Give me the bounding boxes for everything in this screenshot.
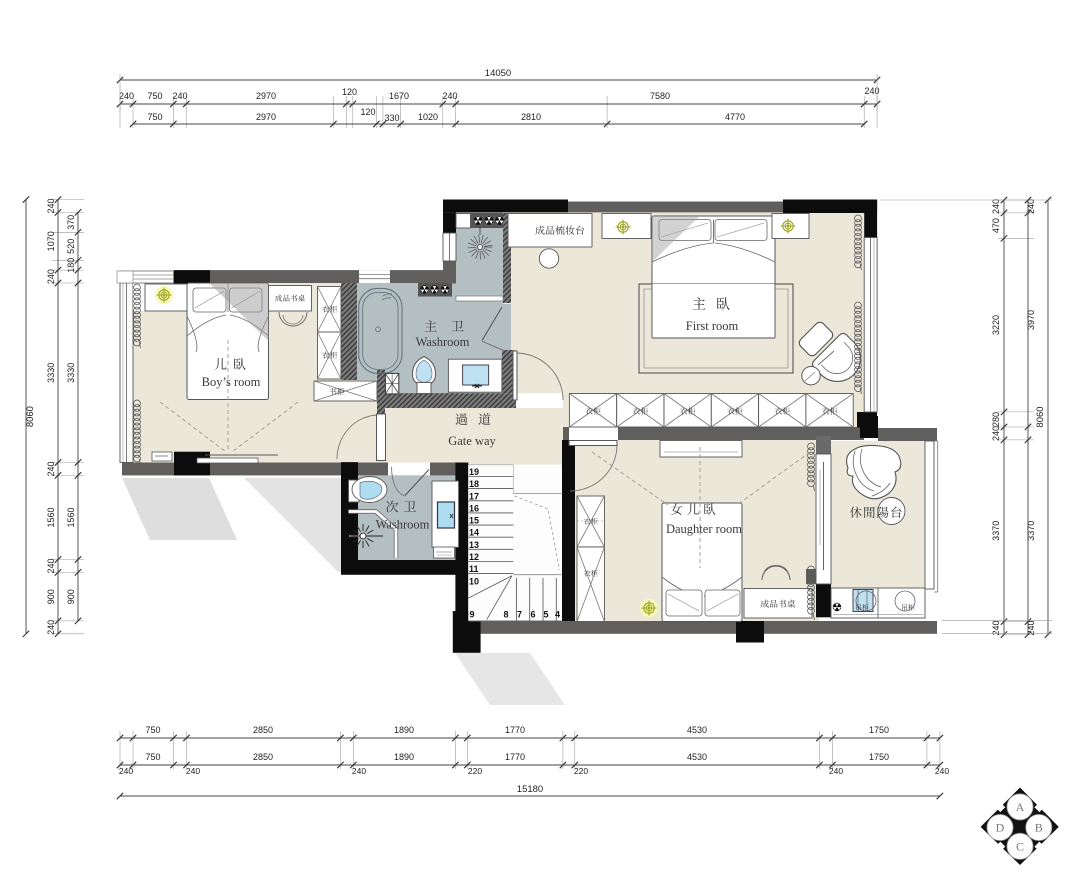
svg-text:4530: 4530 [687, 752, 707, 762]
svg-text:4: 4 [555, 610, 560, 620]
svg-text:240: 240 [935, 766, 949, 776]
svg-text:2850: 2850 [253, 725, 273, 735]
svg-text:3330: 3330 [46, 363, 56, 383]
svg-text:4530: 4530 [687, 725, 707, 735]
svg-text:7580: 7580 [650, 91, 670, 101]
svg-text:1560: 1560 [66, 507, 76, 527]
svg-text:3370: 3370 [991, 521, 1001, 541]
svg-text:240: 240 [46, 198, 56, 213]
svg-text:8060: 8060 [25, 406, 36, 427]
svg-text:15180: 15180 [517, 784, 543, 795]
svg-text:Washroom: Washroom [376, 518, 430, 532]
svg-text:240: 240 [186, 766, 200, 776]
svg-text:120: 120 [360, 107, 375, 117]
svg-text:16: 16 [469, 503, 479, 513]
svg-text:240: 240 [46, 269, 56, 284]
svg-text:900: 900 [46, 589, 56, 604]
svg-text:1020: 1020 [418, 112, 438, 122]
svg-text:120: 120 [342, 87, 357, 97]
svg-text:6: 6 [530, 610, 535, 620]
svg-text:C: C [1016, 840, 1024, 854]
svg-text:7: 7 [517, 610, 522, 620]
svg-text:14: 14 [469, 528, 479, 538]
svg-text:First room: First room [686, 319, 739, 333]
svg-text:3220: 3220 [991, 315, 1001, 335]
svg-text:370: 370 [66, 215, 76, 230]
svg-text:D: D [996, 821, 1005, 835]
svg-text:2970: 2970 [256, 112, 276, 122]
svg-text:17: 17 [469, 491, 479, 501]
svg-text:1890: 1890 [394, 752, 414, 762]
svg-text:2810: 2810 [521, 112, 541, 122]
svg-text:10: 10 [469, 576, 479, 586]
svg-text:900: 900 [66, 589, 76, 604]
svg-text:220: 220 [468, 766, 482, 776]
svg-text:A: A [1016, 800, 1025, 814]
svg-text:2970: 2970 [256, 91, 276, 101]
svg-text:Boy’s room: Boy’s room [202, 375, 261, 389]
svg-text:Gate way: Gate way [448, 434, 496, 448]
svg-text:240: 240 [119, 91, 134, 101]
svg-text:240: 240 [352, 766, 366, 776]
svg-text:18: 18 [469, 479, 479, 489]
svg-text:280: 280 [991, 412, 1001, 427]
svg-text:1670: 1670 [389, 91, 409, 101]
svg-text:9: 9 [469, 610, 474, 620]
svg-text:14050: 14050 [485, 68, 511, 79]
svg-text:1560: 1560 [46, 507, 56, 527]
svg-text:750: 750 [145, 752, 160, 762]
svg-text:12: 12 [469, 552, 479, 562]
svg-text:8060: 8060 [1035, 406, 1046, 427]
svg-text:Daughter room: Daughter room [666, 522, 742, 536]
svg-text:3370: 3370 [1026, 521, 1036, 541]
svg-text:8: 8 [503, 610, 508, 620]
svg-text:330: 330 [384, 113, 399, 123]
svg-text:5: 5 [543, 610, 548, 620]
svg-text:240: 240 [1026, 199, 1036, 214]
svg-text:1750: 1750 [869, 752, 889, 762]
svg-text:1070: 1070 [46, 231, 56, 251]
svg-text:240: 240 [119, 766, 133, 776]
svg-text:220: 220 [574, 766, 588, 776]
svg-text:B: B [1035, 821, 1043, 835]
svg-text:240: 240 [829, 766, 843, 776]
svg-text:15: 15 [469, 516, 479, 526]
svg-text:470: 470 [991, 218, 1001, 233]
svg-text:1770: 1770 [505, 752, 525, 762]
svg-text:750: 750 [147, 112, 162, 122]
svg-text:1890: 1890 [394, 725, 414, 735]
svg-text:19: 19 [469, 467, 479, 477]
svg-text:240: 240 [991, 426, 1001, 441]
svg-text:1770: 1770 [505, 725, 525, 735]
svg-text:3970: 3970 [1026, 310, 1036, 330]
svg-text:240: 240 [46, 558, 56, 573]
svg-text:13: 13 [469, 540, 479, 550]
svg-text:750: 750 [147, 91, 162, 101]
svg-text:3330: 3330 [66, 363, 76, 383]
svg-text:4770: 4770 [725, 112, 745, 122]
svg-text:2850: 2850 [253, 752, 273, 762]
svg-text:240: 240 [172, 91, 187, 101]
svg-text:Washroom: Washroom [416, 335, 470, 349]
svg-text:180: 180 [66, 258, 76, 273]
svg-text:520: 520 [66, 239, 76, 254]
svg-text:1750: 1750 [869, 725, 889, 735]
svg-text:240: 240 [46, 461, 56, 476]
svg-text:750: 750 [145, 725, 160, 735]
svg-text:240: 240 [46, 620, 56, 635]
svg-text:240: 240 [442, 91, 457, 101]
svg-text:11: 11 [469, 564, 479, 574]
svg-text:240: 240 [991, 199, 1001, 214]
